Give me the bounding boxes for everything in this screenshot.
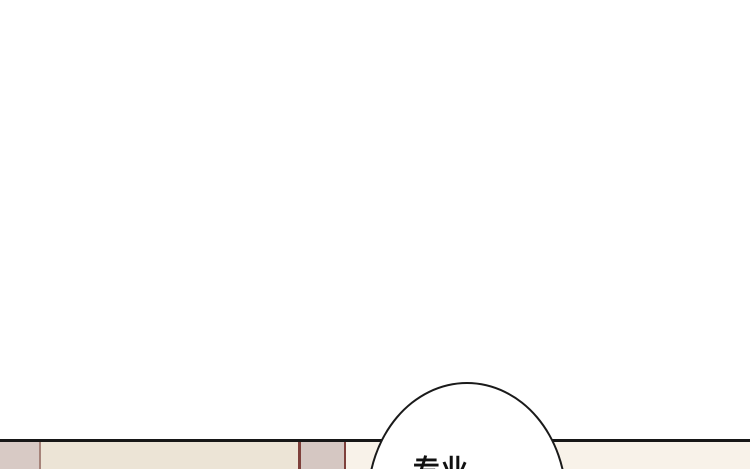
- pillar-edge-line-right: [344, 442, 346, 469]
- wall-pillar-block: [301, 442, 344, 469]
- wall-beige-section: [41, 442, 298, 469]
- speech-bubble-text: 专业: [413, 455, 563, 469]
- comic-page: 专业: [0, 0, 750, 469]
- wall-left-block: [0, 442, 39, 469]
